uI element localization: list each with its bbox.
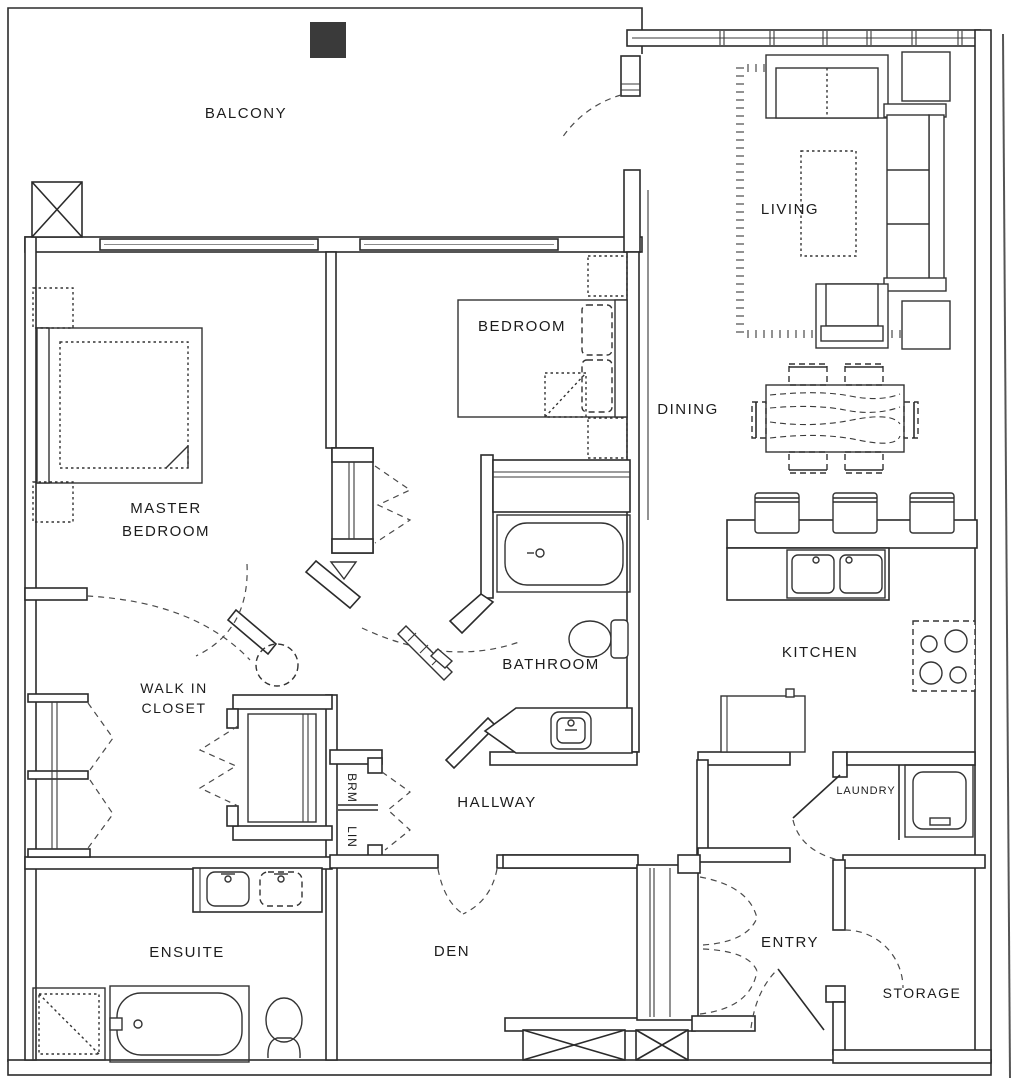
wic-wardrobe-icon	[200, 714, 316, 822]
floor-plan-drawing: BALCONY LIVING MASTER BEDROOM BEDROOM DI…	[0, 0, 1023, 1085]
closet-shelf	[28, 849, 90, 857]
room-label-brm: BRM	[345, 773, 359, 803]
room-label-ensuite: ENSUITE	[149, 944, 225, 961]
room-label-storage: STORAGE	[883, 985, 962, 1001]
storage-south-wall	[833, 1050, 991, 1063]
room-label-bedroom: BEDROOM	[478, 318, 566, 335]
laundry-door-leaf-icon	[793, 775, 840, 818]
page-edge-right	[1003, 34, 1010, 1078]
laundry-north-wall	[847, 752, 975, 765]
room-label-living: LIVING	[761, 201, 819, 218]
west-wall	[25, 237, 36, 1060]
entry-closet	[637, 855, 755, 1031]
bathtub-icon	[497, 515, 630, 592]
storage-door-stub	[826, 986, 845, 1002]
bathroom-diagonal-wall	[446, 718, 496, 768]
den-door-arc-right	[463, 869, 497, 914]
toilet-icon	[569, 620, 628, 658]
washer-icon	[905, 765, 973, 837]
balcony-outline	[8, 8, 642, 1062]
ensuite-bathtub-icon	[110, 986, 249, 1062]
room-label-dining: DINING	[657, 401, 719, 418]
den-north-wall	[503, 855, 638, 868]
bathroom-door-leaf-icon	[398, 626, 452, 680]
shower-icon	[33, 988, 105, 1060]
closet-bifold-door-icon	[375, 466, 410, 543]
bar-stool-icon	[755, 493, 954, 533]
structural-column-icon	[32, 182, 82, 237]
stove-icon	[913, 621, 975, 691]
living-window-wall	[627, 30, 980, 46]
bathroom-west-wall-end	[450, 594, 493, 633]
wardrobe-bifold-door-icon	[200, 726, 238, 806]
room-label-master-line1: MASTER	[130, 500, 202, 517]
entry-closet-door-arc	[703, 949, 757, 971]
bathroom-west-wall	[481, 455, 493, 598]
entry-closet-door-arc	[700, 971, 757, 1014]
room-label-balcony: BALCONY	[205, 105, 287, 122]
master-door-arc	[196, 564, 247, 656]
brm-lin-bifold-door-icon	[382, 772, 410, 850]
nightstand-icon	[33, 288, 73, 328]
master-south-stub	[25, 588, 87, 600]
kitchen-sink-icon	[787, 550, 885, 598]
sofa-icon	[766, 55, 888, 118]
room-label-walkin-line1: WALK IN	[140, 680, 208, 696]
kitchen-fixtures	[721, 493, 977, 752]
armchair-icon	[816, 284, 888, 348]
hallway-south-wall-left	[330, 855, 438, 868]
room-label-den: DEN	[434, 943, 470, 960]
dining-table-icon	[766, 385, 904, 452]
den-door-arc-left	[438, 869, 463, 914]
living-west-wall	[624, 170, 640, 252]
closet-shelf	[28, 694, 88, 702]
room-label-entry: ENTRY	[761, 934, 819, 951]
storage-west-wall-upper	[833, 860, 845, 930]
brm-lin-closet	[330, 750, 410, 858]
wic-closet-left-wall-a	[227, 709, 238, 728]
laundry-door-arc	[793, 820, 838, 860]
laundry-west-wall	[697, 760, 708, 860]
wic-closet-left-wall-b	[227, 806, 238, 826]
storage-west-wall-lower	[833, 1002, 845, 1054]
bathroom-vanity-icon	[485, 708, 632, 753]
bathroom-south-wall	[490, 752, 637, 765]
room-label-master-line2: BEDROOM	[122, 523, 210, 540]
entry-closet-door-arc	[700, 877, 757, 918]
dining-furniture	[752, 364, 918, 473]
ensuite-fixtures	[33, 868, 322, 1062]
chair-icon	[256, 644, 298, 686]
master-bed-icon	[37, 328, 202, 483]
nightstand-icon	[588, 256, 627, 296]
dark-utility-square-icon	[310, 22, 346, 58]
room-label-laundry: LAUNDRY	[836, 785, 895, 797]
walk-in-closet-fixtures	[28, 644, 316, 857]
room-label-hallway: HALLWAY	[457, 794, 536, 811]
nightstand-icon	[33, 482, 73, 522]
floor-plan-page: BALCONY LIVING MASTER BEDROOM BEDROOM DI…	[0, 0, 1023, 1085]
room-label-bathroom: BATHROOM	[502, 656, 600, 673]
laundry-fixtures	[899, 765, 973, 840]
balcony-door-icon	[562, 56, 640, 138]
wic-closet-top-wall	[233, 695, 332, 709]
fridge-icon	[721, 689, 805, 752]
room-label-lin: LIN	[345, 826, 359, 848]
storage-north-wall	[843, 855, 985, 868]
sectional-sofa-icon	[884, 104, 946, 291]
front-door-leaf-icon	[778, 969, 824, 1030]
bedroom-window	[360, 239, 558, 250]
bedroom-closet-icon	[493, 460, 630, 512]
side-table-icon	[902, 52, 950, 101]
master-bedroom-divider-wall	[326, 252, 336, 448]
storage-door-arc	[845, 930, 903, 988]
master-window	[100, 239, 318, 250]
wic-closet-bottom-wall	[233, 826, 332, 840]
wic-angled-wall	[228, 610, 276, 654]
hall-closet	[332, 448, 410, 553]
entry-closet-door-arc	[703, 918, 757, 945]
bathroom-fixtures	[485, 515, 632, 753]
closet-bifold-door-icon	[88, 780, 113, 848]
structural-box-icon	[523, 1030, 688, 1060]
room-label-walkin-line2: CLOSET	[141, 700, 206, 716]
entry-north-wall	[698, 848, 790, 862]
kitchen-south-wall	[698, 752, 790, 765]
nightstand-icon	[588, 418, 627, 458]
room-label-kitchen: KITCHEN	[782, 644, 858, 661]
closet-bifold-door-icon	[88, 703, 113, 770]
bathroom-door-arc	[362, 628, 522, 652]
wic-door-arc	[87, 596, 250, 660]
closet-shelf	[28, 771, 88, 779]
ensuite-toilet-icon	[266, 998, 302, 1058]
laundry-door-post	[833, 752, 847, 777]
side-table-icon	[902, 301, 950, 349]
ensuite-vanity-icon	[193, 868, 322, 912]
